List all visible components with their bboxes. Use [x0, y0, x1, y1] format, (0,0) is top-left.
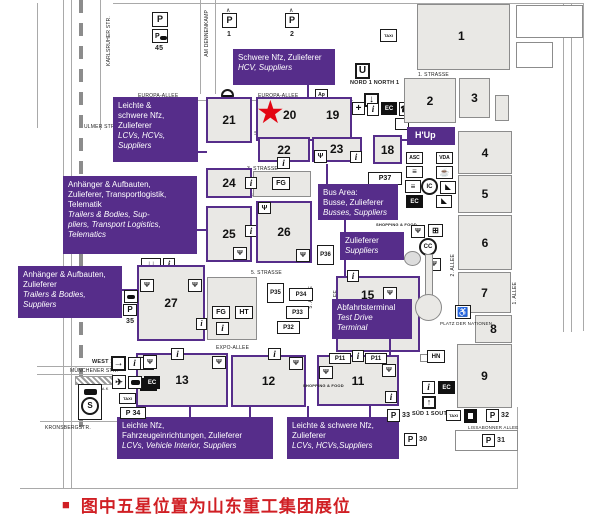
- covered-parking-icon-p2: P: [285, 13, 299, 28]
- parking-icon-p45-top: P: [152, 12, 168, 27]
- fairground-map: KARLSRUHER STR. AM DENNENKAMP ULMER STR.…: [0, 0, 600, 526]
- street-label-expo-allee: EXPO-ALLEE: [216, 345, 249, 351]
- info-icon-hall24: i: [245, 177, 257, 189]
- car-glyph-p45: [160, 36, 167, 40]
- parking-number-1: 1: [227, 31, 231, 38]
- parking-number-33-south: 33: [402, 412, 410, 419]
- restaurant-icon-hall27-left: Ψ: [140, 279, 154, 292]
- street-label-kronsberg: KRONSBERGSTR.: [45, 425, 91, 431]
- parking-icon-p32-south: P: [486, 409, 499, 422]
- entrance-sued-label: SÜD 1 SOUTH 1: [412, 411, 446, 417]
- market-icon-cc: ⊞: [428, 224, 443, 237]
- hall-4: 4: [458, 131, 512, 174]
- ec-cash-icon-center: EC: [406, 195, 423, 208]
- road-dennenkamp-2: [215, 0, 216, 94]
- parking-icon-p31: P: [482, 434, 495, 447]
- restaurant-icon-hall23: Ψ: [314, 150, 327, 163]
- sbahn-station-building: S: [78, 384, 102, 420]
- parking-number-32-south: 32: [501, 412, 509, 419]
- info-icon-hall22: i: [277, 157, 290, 169]
- info-icon-hall23: i: [350, 151, 362, 163]
- map-frame-right: [583, 3, 584, 331]
- hall-18: 18: [373, 135, 402, 164]
- road-left-border: [37, 3, 38, 128]
- parking-p33-mid: P33: [286, 306, 309, 319]
- hall-8: 8: [475, 315, 512, 343]
- label-anhaenger-short: Anhänger & Aufbauten, Zulieferer Trailer…: [18, 266, 122, 318]
- info-icon-sued-1: i: [422, 381, 435, 394]
- ec-cash-icon-west: EC: [144, 376, 160, 389]
- road-muenchener-1: [37, 366, 113, 367]
- label-schwere-nfz-top: Schwere Nfz, Zulieferer HCV, Suppliers: [233, 49, 335, 85]
- sbahn-icon-west: S: [81, 397, 99, 415]
- star-marker: ★: [256, 96, 285, 128]
- taxi-stand-top: TAXI: [380, 29, 397, 42]
- label-zulieferer: Zulieferer Suppliers: [340, 232, 404, 260]
- connector-bus-area-top: [326, 164, 328, 185]
- hermes-tower-top: [415, 294, 442, 321]
- parking-number-31: 31: [497, 437, 505, 444]
- fuel-station-icon: [464, 409, 477, 423]
- parking-p34-mid: P34: [289, 288, 313, 301]
- restaurant-icon-west: Ψ: [143, 355, 157, 369]
- parking-number-2: 2: [290, 31, 294, 38]
- accessible-icon: ♿: [455, 305, 471, 319]
- parking-p32-mid: P32: [277, 321, 300, 334]
- vda-badge: VDA: [436, 152, 453, 164]
- label-bus-area: Bus Area: Busse, Zulieferer Busses, Supp…: [318, 184, 398, 220]
- lounge-icon: ◣: [440, 181, 456, 194]
- road-right-2: [571, 4, 572, 332]
- hall-27: 27: [137, 265, 205, 341]
- hall-5: 5: [458, 175, 512, 213]
- taxi-stand-west: TAXI: [119, 393, 136, 404]
- street-label-karlsruher: KARLSRUHER STR.: [106, 16, 112, 66]
- caption-bullet: ■: [62, 498, 70, 511]
- info-icon-hall27-right: i: [196, 318, 207, 330]
- hall-19-number: 19: [326, 108, 339, 122]
- connector-zulieferer-hall15: [344, 260, 346, 277]
- info-icon-hall15: i: [347, 270, 359, 282]
- parking-icon-p35-left: P: [123, 304, 137, 316]
- building-northeast-1: [516, 5, 583, 38]
- street-label-ulmer: ULMER STR.: [84, 124, 116, 130]
- taxi-stand-sued: TAXI: [446, 410, 461, 421]
- cafe-icon: ☕: [436, 166, 453, 179]
- parking-number-35-left: 35: [126, 318, 134, 325]
- restaurant-icon-hall11-left: Ψ: [319, 366, 333, 379]
- label-hup: H'Up: [407, 127, 455, 145]
- info-icon-nord: i: [367, 103, 379, 116]
- connector-leichte-schwere-2: [369, 404, 371, 418]
- parking-car-icon-p35-left: [124, 290, 138, 303]
- restaurant-icon-hall25: Ψ: [233, 247, 247, 260]
- restaurant-icon-hall26-top: Ψ: [258, 202, 271, 214]
- street-label-dennenkamp: AM DENNENKAMP: [204, 10, 210, 57]
- restaurant-icon-hall26-bottom: Ψ: [296, 249, 310, 262]
- caption: ■ 图中五星位置为山东重工集团展位: [62, 491, 351, 517]
- hall-9: 9: [457, 344, 512, 408]
- shopping-food-label-south: SHOPPING & FOOD: [303, 383, 329, 388]
- info-icon-hall13: i: [171, 348, 184, 360]
- connector-abfahrt: [389, 339, 391, 356]
- parking-p35-mid: P35: [267, 283, 284, 303]
- building-northeast-2: [516, 42, 553, 68]
- info-icon-fght: i: [216, 322, 229, 335]
- hall-20-number: 20: [283, 108, 296, 122]
- info-icon-hall11-top: i: [352, 350, 364, 362]
- entrance-nord-label: NORD 1 NORTH 1: [350, 80, 396, 86]
- connector-leichte-left: [198, 151, 207, 153]
- label-abfahrtsterminal: Abfahrtsterminal Test Drive Terminal: [332, 299, 412, 339]
- hall-3: 3: [459, 78, 490, 118]
- entrance-sued-arrow-icon: ↑: [422, 396, 436, 409]
- parking-icon-p30: P: [404, 433, 417, 446]
- car-service-icon-west: [128, 376, 142, 389]
- hall-23-number: 23: [330, 142, 343, 156]
- hall-2: 2: [404, 78, 456, 123]
- dome-building: [404, 251, 421, 266]
- label-leichte-schwere-bottom: Leichte & schwere Nfz, Zulieferer LCVs, …: [287, 417, 399, 459]
- info-icon-west: i: [128, 357, 141, 370]
- fg-badge-north: FG: [272, 177, 290, 190]
- ic-meeting-icon: IC: [421, 178, 438, 195]
- street-label-5-strasse: 5. STRASSE: [251, 270, 282, 276]
- label-leichte-schwere-left: Leichte & schwere Nfz, Zulieferer LCVs, …: [113, 97, 198, 162]
- parking-icon-p33-south: P: [387, 409, 400, 422]
- map-frame-bottom: [20, 488, 518, 489]
- business-icon: ◣: [436, 195, 452, 208]
- hall-3-annex: [495, 95, 509, 121]
- first-aid-icon: +: [352, 102, 365, 115]
- copy-service-icon: ≡: [405, 180, 421, 193]
- covered-parking-icon-p1: P: [222, 13, 237, 28]
- info-icon-hall11-se: i: [385, 391, 397, 403]
- street-label-1-allee: 1. ALLEE: [512, 282, 518, 304]
- street-label-2-allee: 2. ALLEE: [450, 254, 456, 276]
- ht-badge: HT: [235, 306, 253, 319]
- caption-text: 图中五星位置为山东重工集团展位: [81, 492, 351, 517]
- restaurant-icon-hall13-right: Ψ: [212, 356, 226, 369]
- label-anhaenger-full: Anhänger & Aufbauten, Zulieferer, Transp…: [63, 176, 197, 254]
- press-center-icon: ≡: [406, 166, 423, 178]
- label-leichte-nfz-bottom: Leichte Nfz, Fahrzeugeinrichtungen, Zuli…: [117, 417, 273, 459]
- car-glyph-station: [84, 389, 97, 395]
- parking-p11-left: P11: [329, 353, 351, 364]
- asc-badge: ASC: [406, 152, 423, 164]
- airport-shuttle-icon: ✈: [112, 375, 126, 389]
- hall-21: 21: [206, 97, 252, 143]
- map-frame-top: [113, 3, 583, 4]
- platz-der-nationen-label: PLATZ DER NATIONEN: [440, 321, 470, 326]
- road-karlsruher-1: [100, 0, 101, 130]
- ec-cash-icon-nord: EC: [381, 102, 397, 115]
- hall-1-number: 1: [458, 29, 465, 43]
- restaurant-icon-hall11-right: Ψ: [382, 364, 396, 377]
- parking-number-45: 45: [155, 45, 163, 52]
- restaurant-icon-cc-left: Ψ: [411, 225, 425, 238]
- road-dennenkamp-1: [200, 0, 201, 94]
- fg-badge-south: FG: [212, 306, 230, 319]
- entrance-west-arrow-icon: →: [111, 356, 126, 371]
- parking-p11-right: P11: [365, 353, 387, 364]
- shopping-food-label-north: SHOPPING & FOOD: [376, 222, 402, 227]
- ubahn-icon: U: [355, 63, 370, 79]
- road-right-1: [563, 4, 564, 332]
- info-icon-hall12: i: [268, 348, 281, 360]
- road-muenchener-2: [37, 374, 113, 375]
- ec-cash-icon-sued: EC: [438, 381, 455, 394]
- parking-number-30: 30: [419, 436, 427, 443]
- restaurant-icon-hall12: Ψ: [289, 357, 303, 370]
- hn-badge: HN: [427, 350, 445, 363]
- parking-p34-west: P34: [120, 407, 146, 419]
- hall-6: 6: [458, 215, 512, 270]
- restaurant-icon-hall27-right: Ψ: [188, 279, 202, 292]
- parking-p36: P36: [317, 245, 334, 265]
